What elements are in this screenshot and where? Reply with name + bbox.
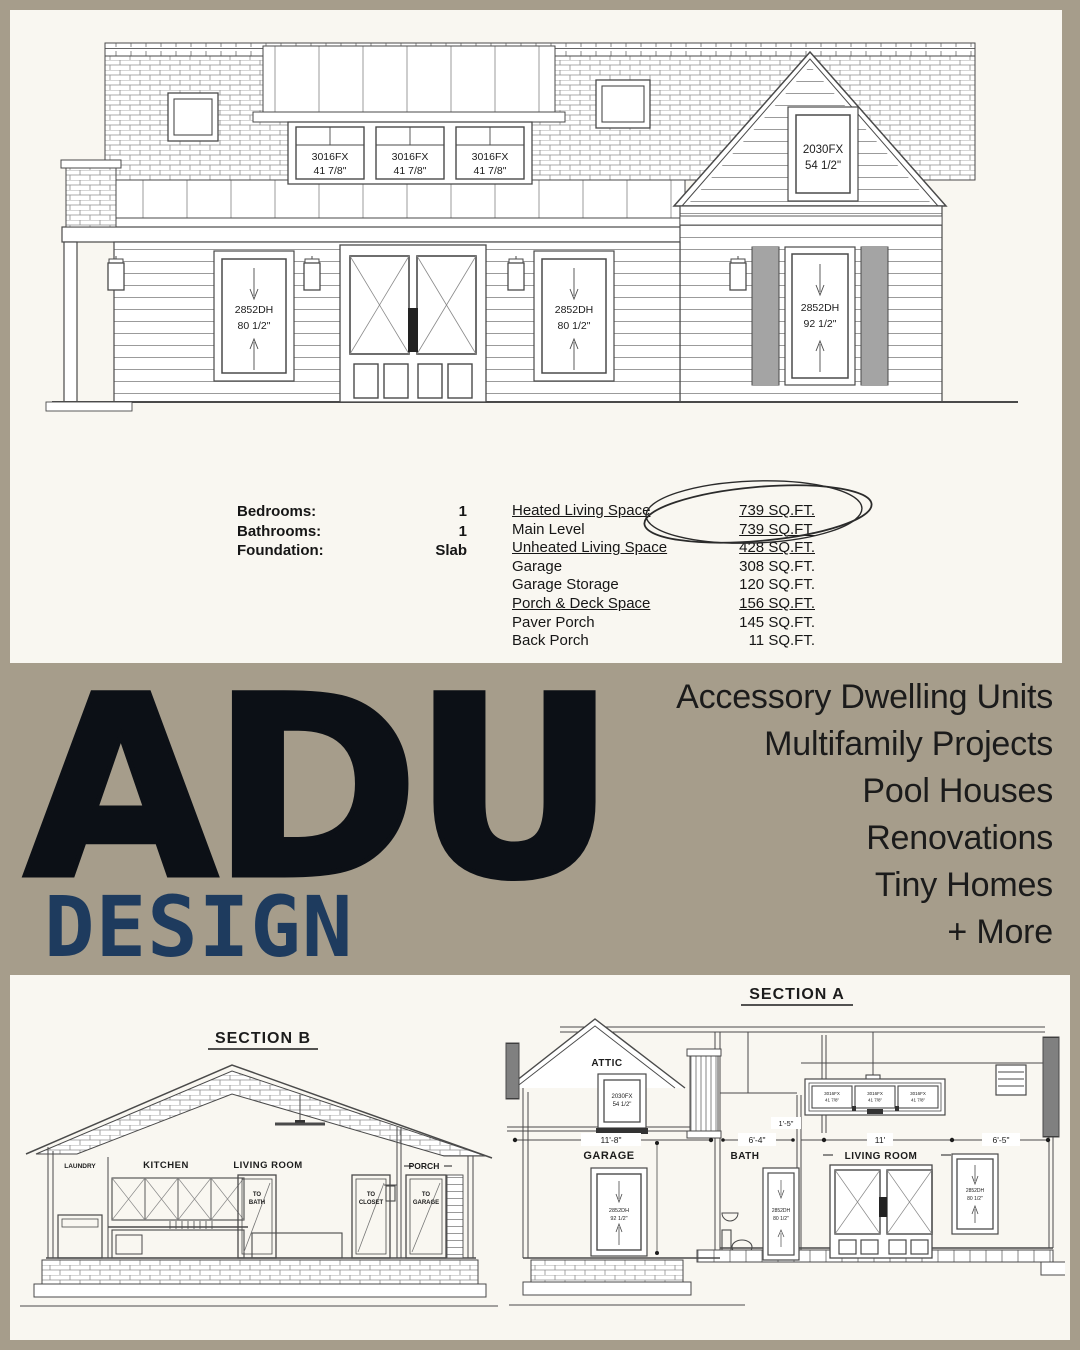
services-list: Accessory Dwelling Units Multifamily Pro…	[676, 674, 1053, 956]
window-size: 54 1/2"	[613, 1102, 632, 1108]
living-window: 2852DH 80 1/2"	[952, 1154, 998, 1234]
window-size: 41 7/8"	[911, 1098, 926, 1103]
area-value: 308 SQ.FT.	[739, 558, 815, 577]
section-a-drawing: SECTION A	[505, 975, 1065, 1335]
bath-window: 2852DH 80 1/2"	[763, 1168, 799, 1260]
section-b-structure	[20, 1065, 498, 1306]
sections-panel: SECTION B	[10, 975, 1070, 1340]
service-item: + More	[676, 909, 1053, 956]
area-value: 11 SQ.FT.	[749, 632, 815, 651]
window-size: 92 1/2"	[804, 318, 837, 330]
window-size: 41 7/8"	[474, 165, 507, 177]
area-row: Paver Porch 145 SQ.FT.	[512, 614, 815, 633]
spec-label: Bathrooms:	[237, 522, 321, 542]
area-label: Garage Storage	[512, 576, 619, 595]
window-label: 3016FX	[867, 1091, 883, 1096]
room-label-kitchen: KITCHEN	[143, 1160, 189, 1171]
area-label: Paver Porch	[512, 614, 595, 633]
window-label: 2852DH	[555, 304, 594, 316]
window-label: 2852DH	[966, 1188, 985, 1194]
section-b-title: SECTION B	[215, 1030, 311, 1047]
flyer-canvas: 3016FX 41 7/8" 3016FX 41 7/8" 3016FX 41 …	[0, 0, 1080, 1350]
highlight-ellipse	[618, 472, 898, 557]
dim-living-width: 11'	[875, 1135, 886, 1145]
window-label: 3016FX	[824, 1091, 840, 1096]
section-b-drawing: SECTION B	[20, 975, 500, 1335]
area-label: Garage	[512, 558, 562, 577]
area-label: Main Level	[512, 521, 585, 540]
left-window: 2852DH 80 1/2"	[214, 251, 294, 381]
spec-label: Foundation:	[237, 541, 324, 561]
window-label: 3016FX	[472, 151, 509, 163]
roof-window-left	[168, 93, 218, 141]
brand-title: ADU	[24, 664, 610, 914]
door-label: BATH	[249, 1200, 265, 1206]
right-window: 2852DH 92 1/2"	[752, 247, 888, 385]
window-label: 3016FX	[392, 151, 429, 163]
window-label: 3016FX	[312, 151, 349, 163]
center-window: 2852DH 80 1/2"	[534, 251, 614, 381]
service-item: Renovations	[676, 815, 1053, 862]
area-row: Garage 308 SQ.FT.	[512, 558, 815, 577]
window-label: 2852DH	[235, 304, 274, 316]
service-item: Multifamily Projects	[676, 721, 1053, 768]
door-label: TO	[253, 1192, 262, 1198]
window-size: 80 1/2"	[238, 320, 271, 332]
window-size: 92 1/2"	[610, 1216, 627, 1222]
area-value: 145 SQ.FT.	[739, 614, 815, 633]
elevation-panel: 3016FX 41 7/8" 3016FX 41 7/8" 3016FX 41 …	[10, 10, 1062, 663]
roof-window-right	[596, 80, 650, 128]
brand-subtitle: DESIGN	[44, 885, 353, 969]
window-label: 2030FX	[803, 144, 844, 156]
section-a-title: SECTION A	[749, 986, 845, 1003]
gable-window: 2030FX 54 1/2"	[788, 107, 858, 201]
window-label: 2852DH	[801, 302, 840, 314]
window-label: 3016FX	[910, 1091, 926, 1096]
window-size: 41 7/8"	[314, 165, 347, 177]
area-value: 120 SQ.FT.	[739, 576, 815, 595]
dim-offset: 1'-5"	[779, 1119, 794, 1128]
spec-value: 1	[459, 522, 467, 542]
french-doors	[340, 245, 486, 402]
window-size: 80 1/2"	[773, 1216, 789, 1222]
door-label: GARAGE	[413, 1200, 439, 1206]
spec-label: Bedrooms:	[237, 502, 316, 522]
window-label: 2852DH	[772, 1208, 791, 1214]
garage-window: 2852DH 92 1/2"	[591, 1168, 647, 1256]
room-label-attic: ATTIC	[591, 1058, 622, 1069]
window-size: 41 7/8"	[868, 1098, 883, 1103]
area-label: Porch & Deck Space	[512, 595, 650, 614]
door-label: CLOSET	[359, 1200, 384, 1206]
window-size: 80 1/2"	[558, 320, 591, 332]
service-item: Tiny Homes	[676, 862, 1053, 909]
window-label: 2030FX	[611, 1094, 632, 1100]
area-value: 156 SQ.FT.	[739, 595, 815, 614]
dim-garage-width: 11'-8"	[600, 1135, 621, 1145]
room-label-garage: GARAGE	[583, 1150, 634, 1162]
room-label-living: LIVING ROOM	[845, 1151, 918, 1162]
door-label: TO	[422, 1192, 431, 1198]
window-label: 2852DH	[609, 1208, 629, 1214]
area-row: Garage Storage 120 SQ.FT.	[512, 576, 815, 595]
area-row: Porch & Deck Space 156 SQ.FT.	[512, 595, 815, 614]
attic-window: 2030FX 54 1/2"	[596, 1074, 648, 1134]
room-label-porch: PORCH	[409, 1161, 440, 1171]
spec-value: 1	[459, 502, 467, 522]
spec-row: Bathrooms: 1	[237, 522, 467, 542]
room-label-living: LIVING ROOM	[233, 1160, 302, 1171]
room-label-laundry: LAUNDRY	[64, 1163, 96, 1170]
specs-summary: Bedrooms: 1 Bathrooms: 1 Foundation: Sla…	[237, 502, 467, 561]
window-size: 80 1/2"	[967, 1196, 983, 1202]
transom-windows: 3016FX 41 7/8" 3016FX 41 7/8" 3016FX 41 …	[805, 1079, 945, 1115]
dim-porch-width: 6'-5"	[993, 1135, 1010, 1145]
service-item: Pool Houses	[676, 768, 1053, 815]
door-label: TO	[367, 1192, 376, 1198]
service-item: Accessory Dwelling Units	[676, 674, 1053, 721]
spec-row: Bedrooms: 1	[237, 502, 467, 522]
living-french-doors	[830, 1165, 932, 1258]
spec-row: Foundation: Slab	[237, 541, 467, 561]
room-label-bath: BATH	[730, 1151, 759, 1162]
spec-value: Slab	[435, 541, 467, 561]
window-size: 41 7/8"	[825, 1098, 840, 1103]
window-size: 54 1/2"	[805, 160, 841, 172]
dormer-windows: 3016FX 41 7/8" 3016FX 41 7/8" 3016FX 41 …	[296, 127, 524, 179]
dim-bath-width: 6'-4"	[749, 1135, 766, 1145]
window-size: 41 7/8"	[394, 165, 427, 177]
